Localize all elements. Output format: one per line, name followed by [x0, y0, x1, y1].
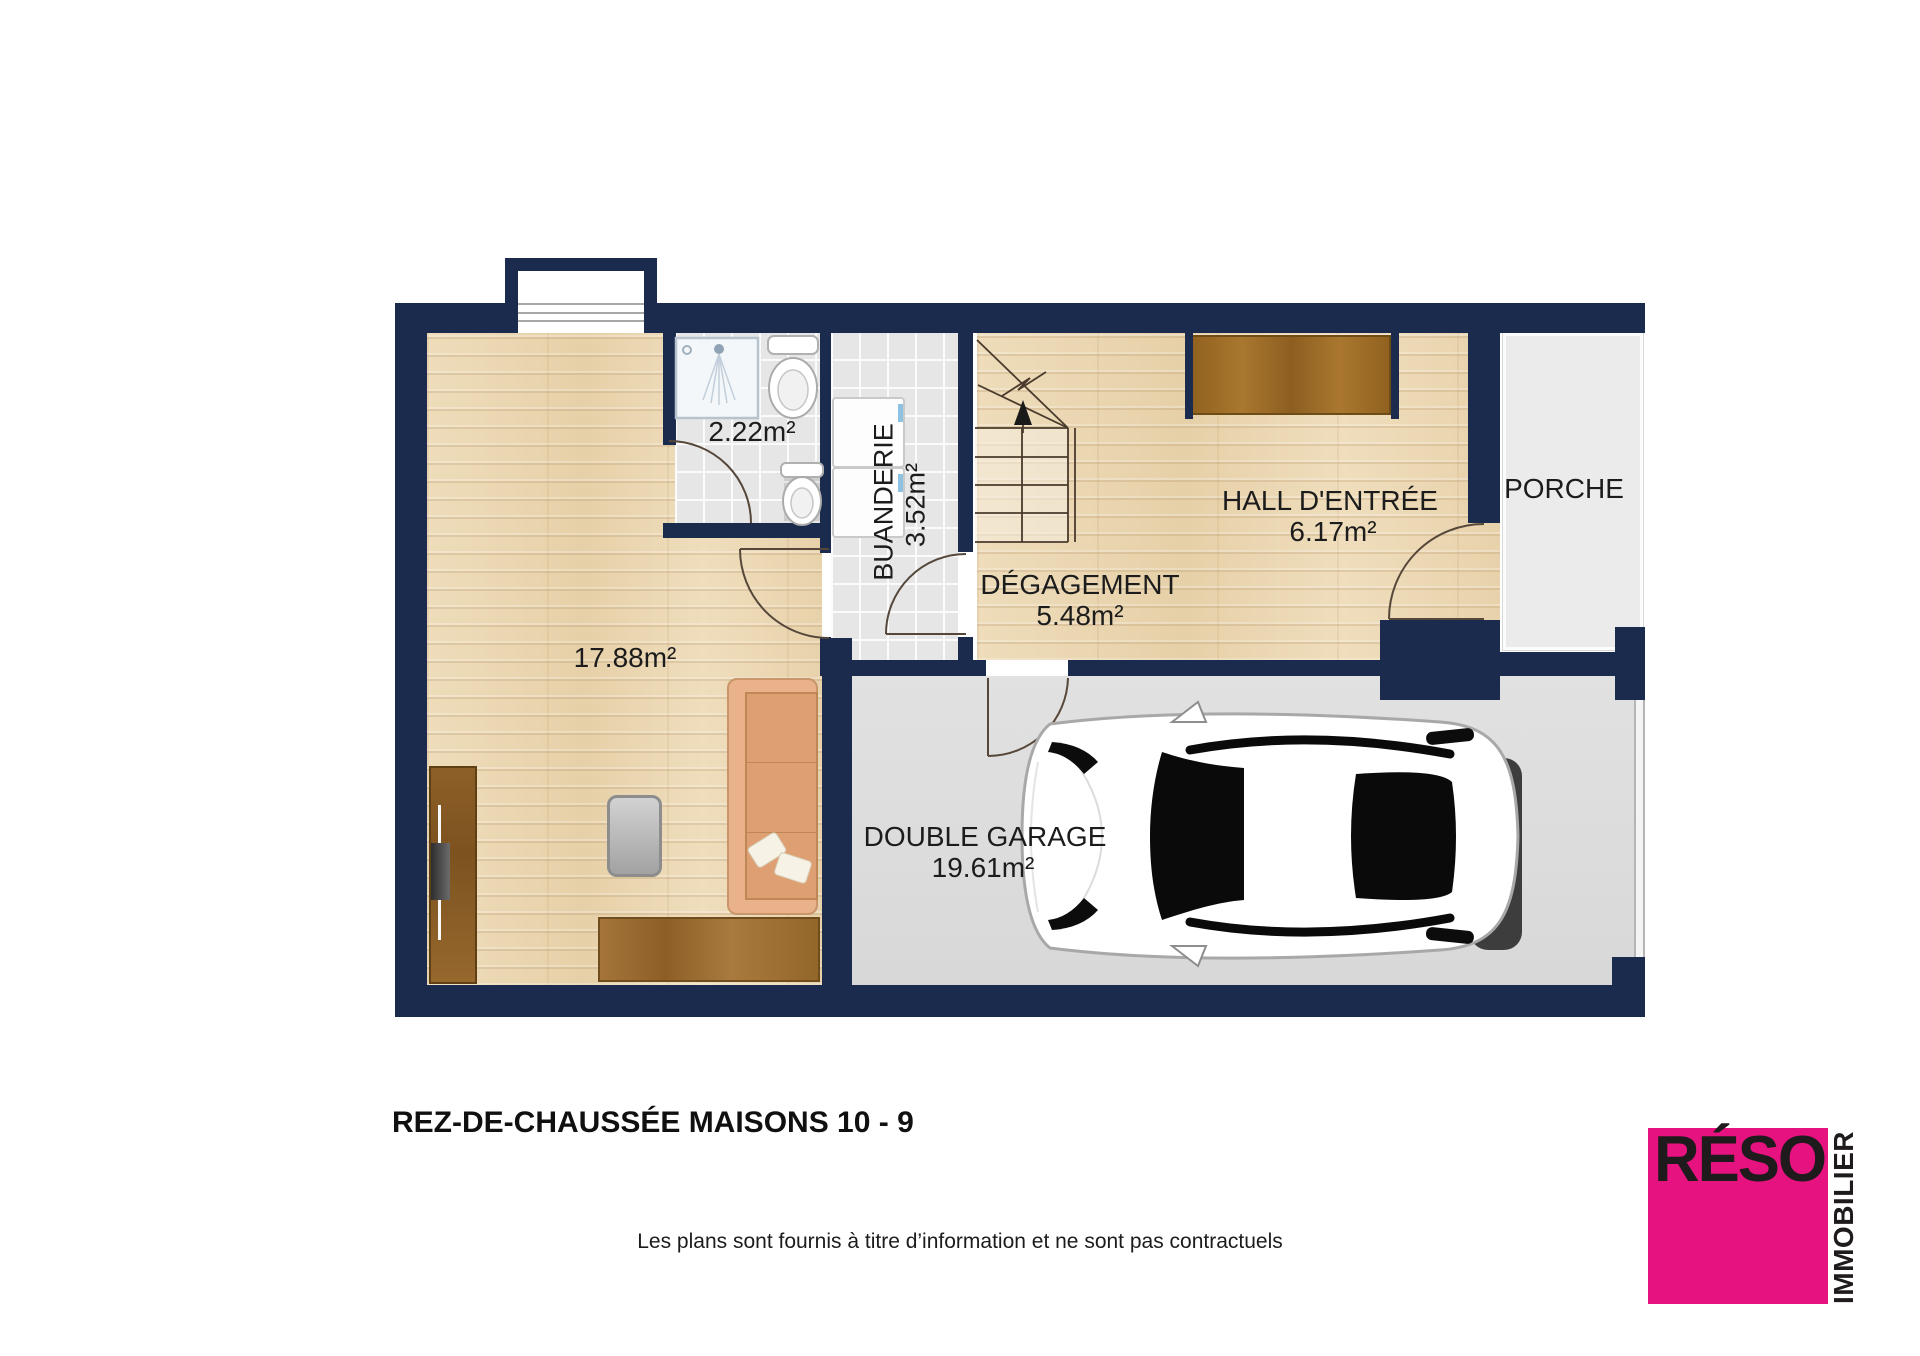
living-room-area-label: 17.88m²: [574, 644, 677, 672]
wall-right-stub-bottom: [1612, 957, 1645, 1017]
wall-bottom: [395, 985, 1645, 1017]
hallway-name-label: DÉGAGEMENT: [980, 571, 1179, 599]
wall-porch-south: [1490, 652, 1622, 676]
side-table: [607, 795, 662, 877]
wall-bathroom-south: [663, 523, 831, 538]
wall-living-garage: [822, 638, 852, 985]
sofa-seat-divider: [747, 762, 816, 763]
window-icon: [518, 271, 644, 333]
porch-name-label: PORCHE: [1504, 475, 1624, 503]
logo-subtitle-text: IMMOBILIER: [1828, 1126, 1860, 1304]
page-title: REZ-DE-CHAUSSÉE MAISONS 10 - 9: [392, 1106, 914, 1140]
floor-plan-page: 17.88m² 2.22m² BUANDERIE 3.52m² DÉGAGEME…: [0, 0, 1920, 1356]
logo-brand-text: RÉSO: [1654, 1122, 1825, 1197]
bathroom-area-label: 2.22m²: [708, 418, 795, 446]
wall-right-stub-mid: [1615, 627, 1645, 700]
wall-laundry-east-upper: [958, 333, 973, 552]
laundry-name-label: BUANDERIE: [871, 423, 898, 581]
sideboard: [598, 917, 820, 982]
wall-left: [395, 303, 427, 1017]
wall-hall-east: [1468, 333, 1500, 523]
wardrobe-end-panel: [1391, 333, 1399, 419]
wardrobe: [1191, 335, 1391, 415]
window-bump-top: [505, 258, 657, 271]
wc-floor: [782, 463, 822, 523]
tv-icon: [431, 843, 450, 900]
hallway-area-label: 5.48m²: [1036, 602, 1123, 630]
wall-front-door-block: [1380, 620, 1500, 700]
garage-area-label: 19.61m²: [932, 854, 1035, 882]
garage-door: [1634, 700, 1645, 957]
entry-hall-area-label: 6.17m²: [1289, 518, 1376, 546]
laundry-area-label: 3.52m²: [903, 463, 930, 547]
disclaimer-text: Les plans sont fournis à titre d’informa…: [0, 1230, 1920, 1254]
sofa-seat-divider: [747, 832, 816, 833]
window-bump-left: [505, 258, 518, 333]
wall-bathroom-west: [663, 333, 676, 445]
window-bump-right: [644, 258, 657, 333]
garage-name-label: DOUBLE GARAGE: [864, 823, 1107, 851]
entry-hall-name-label: HALL D'ENTRÉE: [1222, 487, 1438, 515]
wall-bathroom-laundry: [820, 333, 831, 553]
wardrobe-end-panel: [1185, 333, 1193, 419]
